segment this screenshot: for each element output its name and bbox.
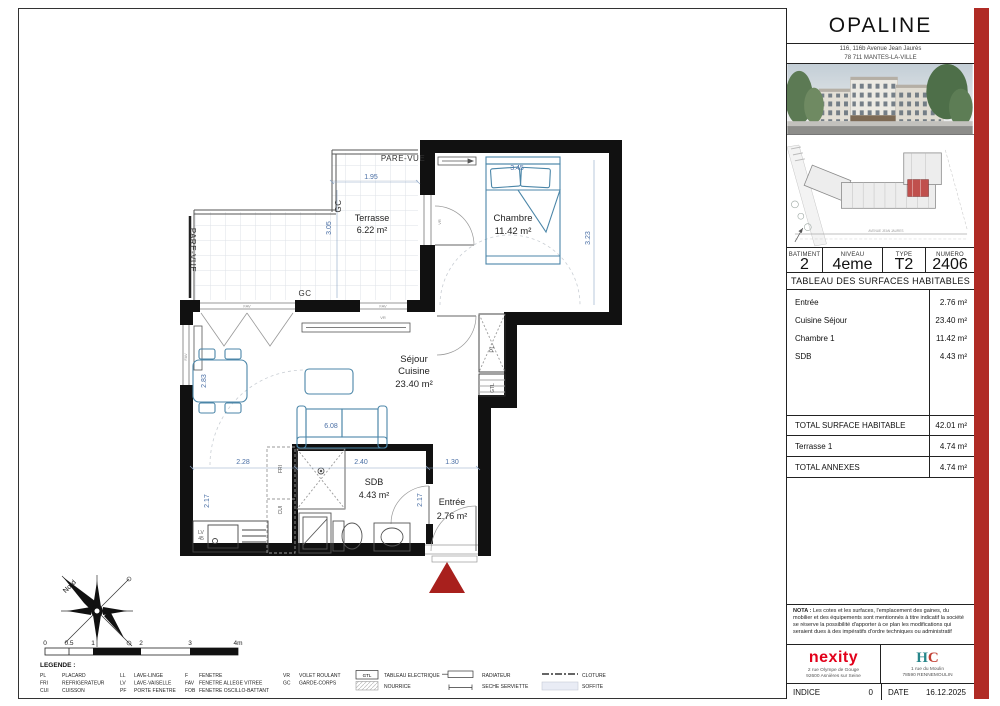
hc-cell: HC 1 rue du Moulin 78590 RENNEMOULIN <box>881 645 974 683</box>
surface-label: Chambre 1 <box>795 334 835 343</box>
dim-terrasse-width: 1.95 <box>364 174 378 181</box>
pare-vue-left-label: PARE-VUE <box>188 228 197 272</box>
nota-text: Les cotes et les surfaces, l'emplacement… <box>793 608 964 635</box>
pare-vue-top-label: PARE-VUE <box>381 154 425 163</box>
total-label: TOTAL SURFACE HABITABLE <box>795 421 905 430</box>
scale-0: 0 <box>43 640 47 647</box>
nexity-address2: 92600 Asnières sur Seine <box>806 674 861 680</box>
french-door-swing <box>201 313 293 346</box>
legend-seche-symbol <box>449 685 472 691</box>
building-photo-image <box>787 64 973 134</box>
legend-nourrice-symbol <box>356 682 378 691</box>
scale-4m: 4m <box>233 640 242 647</box>
room-entree: Entrée <box>439 497 466 507</box>
legend-name: FENETRE ALLEGE VITREE <box>199 681 263 687</box>
total-annexes-value: 4.74 m² <box>940 463 967 472</box>
bed <box>486 157 560 264</box>
logos-row: nexity 2 rue Olympe de Gouge 92600 Asniè… <box>787 645 974 684</box>
unit-niveau: 4eme <box>823 258 883 272</box>
unit-batiment: 2 <box>787 258 823 272</box>
hc-logo-c: C <box>928 650 939 666</box>
hc-address2: 78590 RENNEMOULIN <box>902 673 952 679</box>
unit-numero: 2406 <box>926 258 974 272</box>
site-plan: AVENUE JEAN JAURES <box>787 135 974 248</box>
entrance-mat <box>432 556 477 562</box>
unit-type: T2 <box>883 258 926 272</box>
surface-label: SDB <box>795 352 811 361</box>
entrance-arrow <box>429 562 465 593</box>
room-chambre: Chambre <box>493 213 532 224</box>
indice-date-row: INDICE 0 DATE 16.12.2025 <box>787 684 974 700</box>
fri-label: FRI <box>278 465 284 473</box>
room-chambre-area: 11.42 m² <box>495 226 532 237</box>
surface-row: Chambre 1 11.42 m² <box>787 329 974 347</box>
surface-label: Cuisine Séjour <box>795 316 847 325</box>
surface-value: 2.76 m² <box>940 298 967 307</box>
total-annexes-label: TOTAL ANNEXES <box>795 463 860 472</box>
total-habitable-row: TOTAL SURFACE HABITABLE 42.01 m² <box>787 415 974 436</box>
floor-plan: 1.95 3.05 3.45 3.23 2.83 6.08 2.28 2.40 … <box>0 0 786 706</box>
room-sejour-1: Séjour <box>400 354 427 365</box>
highlighted-unit <box>908 180 929 197</box>
nexity-logo: nexity <box>809 648 858 667</box>
date-value: 16.12.2025 <box>926 688 966 697</box>
nota-block: NOTA : Les cotes et les surfaces, l'empl… <box>787 604 974 645</box>
date-cell: DATE 16.12.2025 <box>881 684 974 700</box>
dim-entree-width: 1.30 <box>445 459 459 466</box>
surfaces-value-divider <box>929 290 930 478</box>
sheet-accent-bar <box>974 8 989 699</box>
dim-sdb-width: 2.40 <box>354 459 368 466</box>
address-line2: 78 711 MANTES-LA-VILLE <box>844 54 916 62</box>
lv-size-label: 45 <box>198 536 204 542</box>
annexe-label: Terrasse 1 <box>795 442 832 451</box>
dim-terrasse-height: 3.05 <box>326 221 333 235</box>
legend-name: RADIATEUR <box>482 673 511 679</box>
street-label: AVENUE JEAN JAURES <box>868 229 903 233</box>
legend-abbr: PF <box>120 688 126 694</box>
legend-name: FENETRE <box>199 673 223 679</box>
legend-name: PORTE FENETRE <box>134 688 177 694</box>
legend-name: SECHE SERVIETTE <box>482 684 529 690</box>
legend-name: VOLET ROULANT <box>299 673 341 679</box>
dim-sejour-left: 2.83 <box>201 374 208 388</box>
surface-value: 4.43 m² <box>940 352 967 361</box>
scale-05: 0.5 <box>64 640 73 647</box>
annexe-row: Terrasse 1 4.74 m² <box>787 436 974 457</box>
fav-label-3: FAV <box>183 353 188 361</box>
legend-abbr: GC <box>283 681 291 687</box>
total-annexes-row: TOTAL ANNEXES 4.74 m² <box>787 457 974 478</box>
legend-name: CLOTURE <box>582 673 607 679</box>
surfaces-title: TABLEAU DES SURFACES HABITABLES <box>787 273 974 290</box>
gc-label-horizontal: GC <box>299 289 312 298</box>
room-sdb: SDB <box>365 477 384 487</box>
building-photo <box>787 64 974 135</box>
dim-sofa: 6.08 <box>324 423 338 430</box>
cui-label: CUI <box>278 506 284 515</box>
legend-name: LAVE-LINGE <box>134 673 164 679</box>
legend-abbr: FAV <box>185 681 195 687</box>
legend-name: LAVE-VAISELLE <box>134 681 172 687</box>
legend-abbr: VR <box>283 673 290 679</box>
indice-label: INDICE <box>793 688 820 697</box>
dim-kitchen-height: 2.17 <box>204 494 211 508</box>
room-sejour-2: Cuisine <box>398 366 430 377</box>
legend-name: REFRIGERATEUR <box>62 681 105 687</box>
legend-name: TABLEAU ELECTRIQUE <box>384 673 440 679</box>
indice-value: 0 <box>869 688 873 697</box>
total-value: 42.01 m² <box>935 421 967 430</box>
vr-label-2: VR <box>437 219 442 225</box>
legend-abbr: F <box>185 673 188 679</box>
surfaces-list: Entrée 2.76 m² Cuisine Séjour 23.40 m² C… <box>787 290 974 415</box>
kitchen-column <box>267 447 295 553</box>
legend-abbr: CUI <box>40 688 49 694</box>
compass: Nord <box>61 575 133 647</box>
project-address: 116, 116b Avenue Jean Jaurès 78 711 MANT… <box>787 44 974 64</box>
surface-value: 11.42 m² <box>936 334 967 343</box>
scale-bar: 0 0.5 1 2 3 4m <box>43 640 242 655</box>
legend-radiator-symbol <box>442 671 473 678</box>
site-north-arrow <box>795 228 803 242</box>
shower <box>297 449 345 509</box>
unit-table: BATIMENT NIVEAU TYPE NUMERO 2 4eme T2 24… <box>787 248 974 273</box>
room-terrasse-area: 6.22 m² <box>357 225 388 235</box>
sofa <box>297 406 387 448</box>
legend-title: LEGENDE : <box>40 662 75 669</box>
gtl-label: GTL <box>490 383 496 393</box>
legend-gtl-text: GTL <box>363 673 372 678</box>
hc-logo: HC <box>916 649 939 667</box>
legend-name: NOURRICE <box>384 684 411 690</box>
legend-name: CUISSON <box>62 688 85 694</box>
plan-sheet: 1.95 3.05 3.45 3.23 2.83 6.08 2.28 2.40 … <box>0 0 1000 706</box>
room-sdb-area: 4.43 m² <box>359 490 390 500</box>
dim-chambre-width: 3.45 <box>510 165 524 172</box>
legend-abbr: FOB <box>185 688 196 694</box>
nexity-cell: nexity 2 rue Olympe de Gouge 92600 Asniè… <box>787 645 881 683</box>
fav-label-1: FAV <box>243 304 251 309</box>
scale-1: 1 <box>91 640 95 647</box>
legend-abbr: LV <box>120 681 126 687</box>
surface-label: Entrée <box>795 298 819 307</box>
legend-abbr: PL <box>40 673 46 679</box>
dim-kitchen: 2.28 <box>236 459 250 466</box>
dim-chambre-height: 3.23 <box>585 231 592 245</box>
address-line1: 116, 116b Avenue Jean Jaurès <box>840 45 922 53</box>
title-block: OPALINE 116, 116b Avenue Jean Jaurès 78 … <box>786 8 974 699</box>
project-header: OPALINE <box>787 8 974 44</box>
hc-logo-h: H <box>916 650 928 666</box>
surface-row: SDB 4.43 m² <box>787 347 974 365</box>
scale-3: 3 <box>188 640 192 647</box>
legend-abbr: LL <box>120 673 126 679</box>
legend-abbr: FRI <box>40 681 48 687</box>
legend-name: SOFFITE <box>582 684 604 690</box>
date-label: DATE <box>888 688 909 697</box>
gc-label-vertical: GC <box>334 200 343 213</box>
room-entree-area: 2.76 m² <box>437 511 468 521</box>
room-terrasse: Terrasse <box>355 213 390 223</box>
legend: LEGENDE : PL PLACARD FRI REFRIGERATEUR C… <box>40 662 607 694</box>
spacer <box>787 478 974 604</box>
legend-name: GARDE-CORPS <box>299 681 337 687</box>
dim-sdb-height: 2.17 <box>417 493 424 507</box>
indice-cell: INDICE 0 <box>787 684 881 700</box>
fav-label-2: FAV <box>379 304 387 309</box>
scale-2: 2 <box>139 640 143 647</box>
room-sejour-area: 23.40 m² <box>395 379 433 390</box>
surface-row: Entrée 2.76 m² <box>787 293 974 311</box>
legend-soffite-symbol <box>542 682 578 690</box>
surface-row: Cuisine Séjour 23.40 m² <box>787 311 974 329</box>
site-plan-image: AVENUE JEAN JAURES <box>787 135 973 247</box>
coffee-table <box>305 369 353 394</box>
nota-bold: NOTA : <box>793 608 811 614</box>
vr-label-1: VR <box>380 315 386 320</box>
project-name: OPALINE <box>829 14 932 38</box>
legend-name: FENETRE OSCILLO-BATTANT <box>199 688 269 694</box>
pl-label: PL <box>490 345 496 353</box>
surface-value: 23.40 m² <box>935 316 967 325</box>
annexe-value: 4.74 m² <box>940 442 967 451</box>
legend-name: PLACARD <box>62 673 86 679</box>
radiator-left <box>194 326 202 370</box>
